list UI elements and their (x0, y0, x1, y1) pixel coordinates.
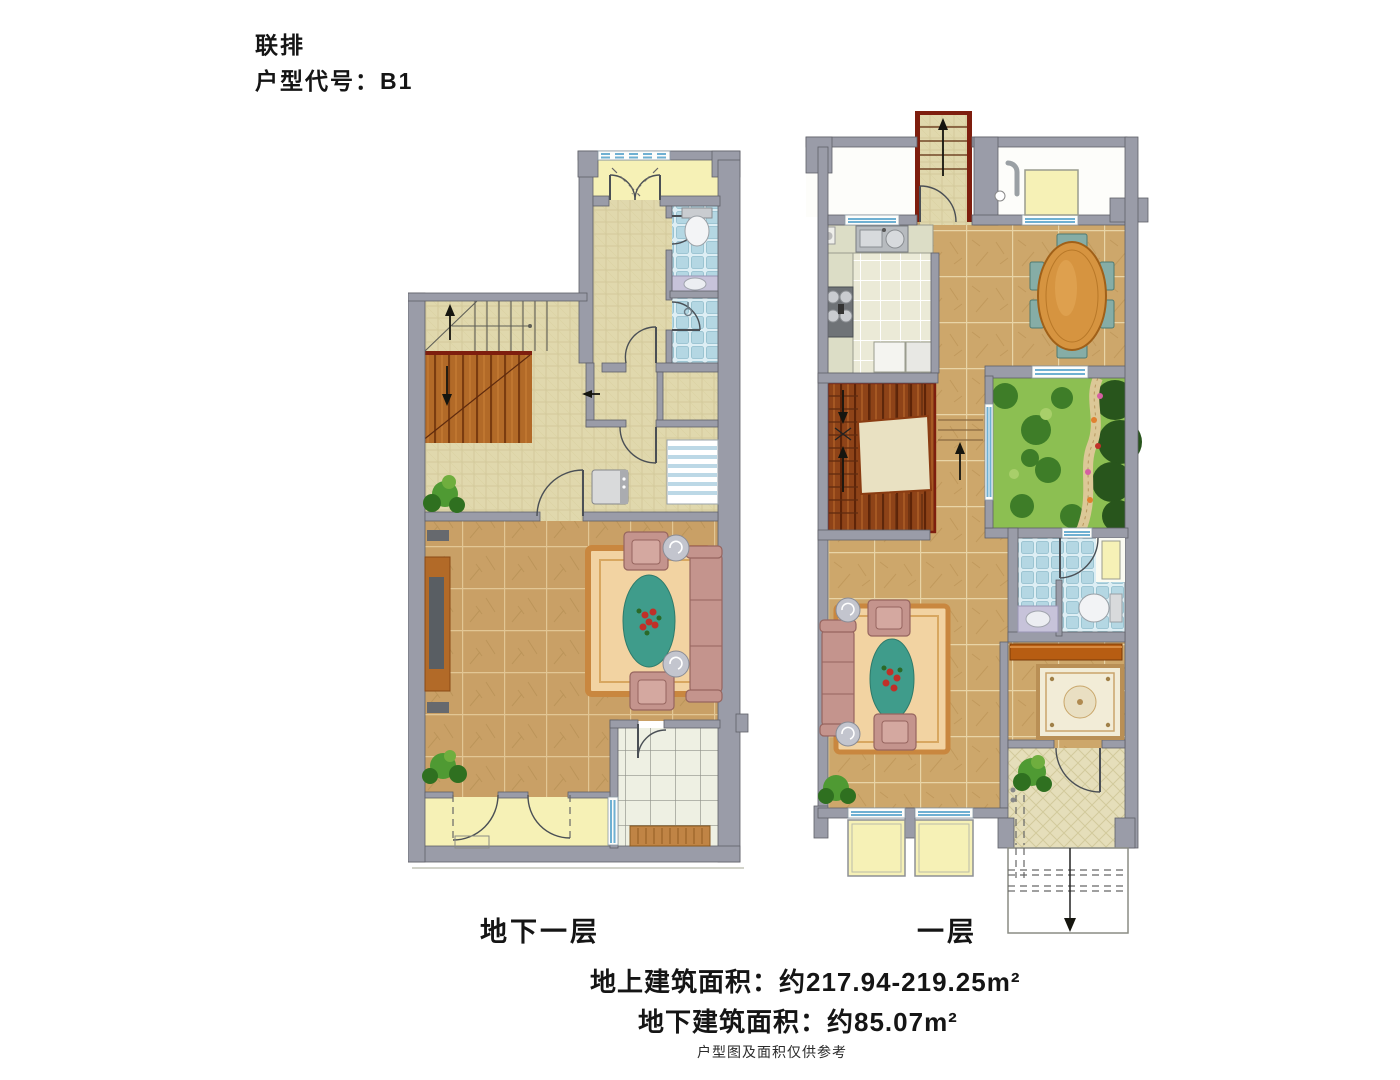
disclaimer-text: 户型图及面积仅供参考 (697, 1042, 847, 1062)
area-above-text: 地上建筑面积：约217.94-219.25m² (590, 962, 1020, 999)
plan-type-label: 联排 (255, 26, 305, 60)
floorplan-sheet: { "header": { "type_label": "联排", "code_… (0, 0, 1400, 1080)
area-below-text: 地下建筑面积：约85.07m² (638, 1002, 958, 1039)
plan-code-label: 户型代号：B1 (255, 62, 413, 96)
basement-floor-plan (408, 108, 756, 870)
first-floor-label: 一层 (917, 910, 977, 949)
outside-steps (1008, 848, 1128, 933)
basement-label: 地下一层 (480, 910, 600, 949)
living-furniture (820, 598, 948, 752)
basement-patio-bench (630, 826, 710, 846)
first-floor-plan (798, 95, 1150, 940)
